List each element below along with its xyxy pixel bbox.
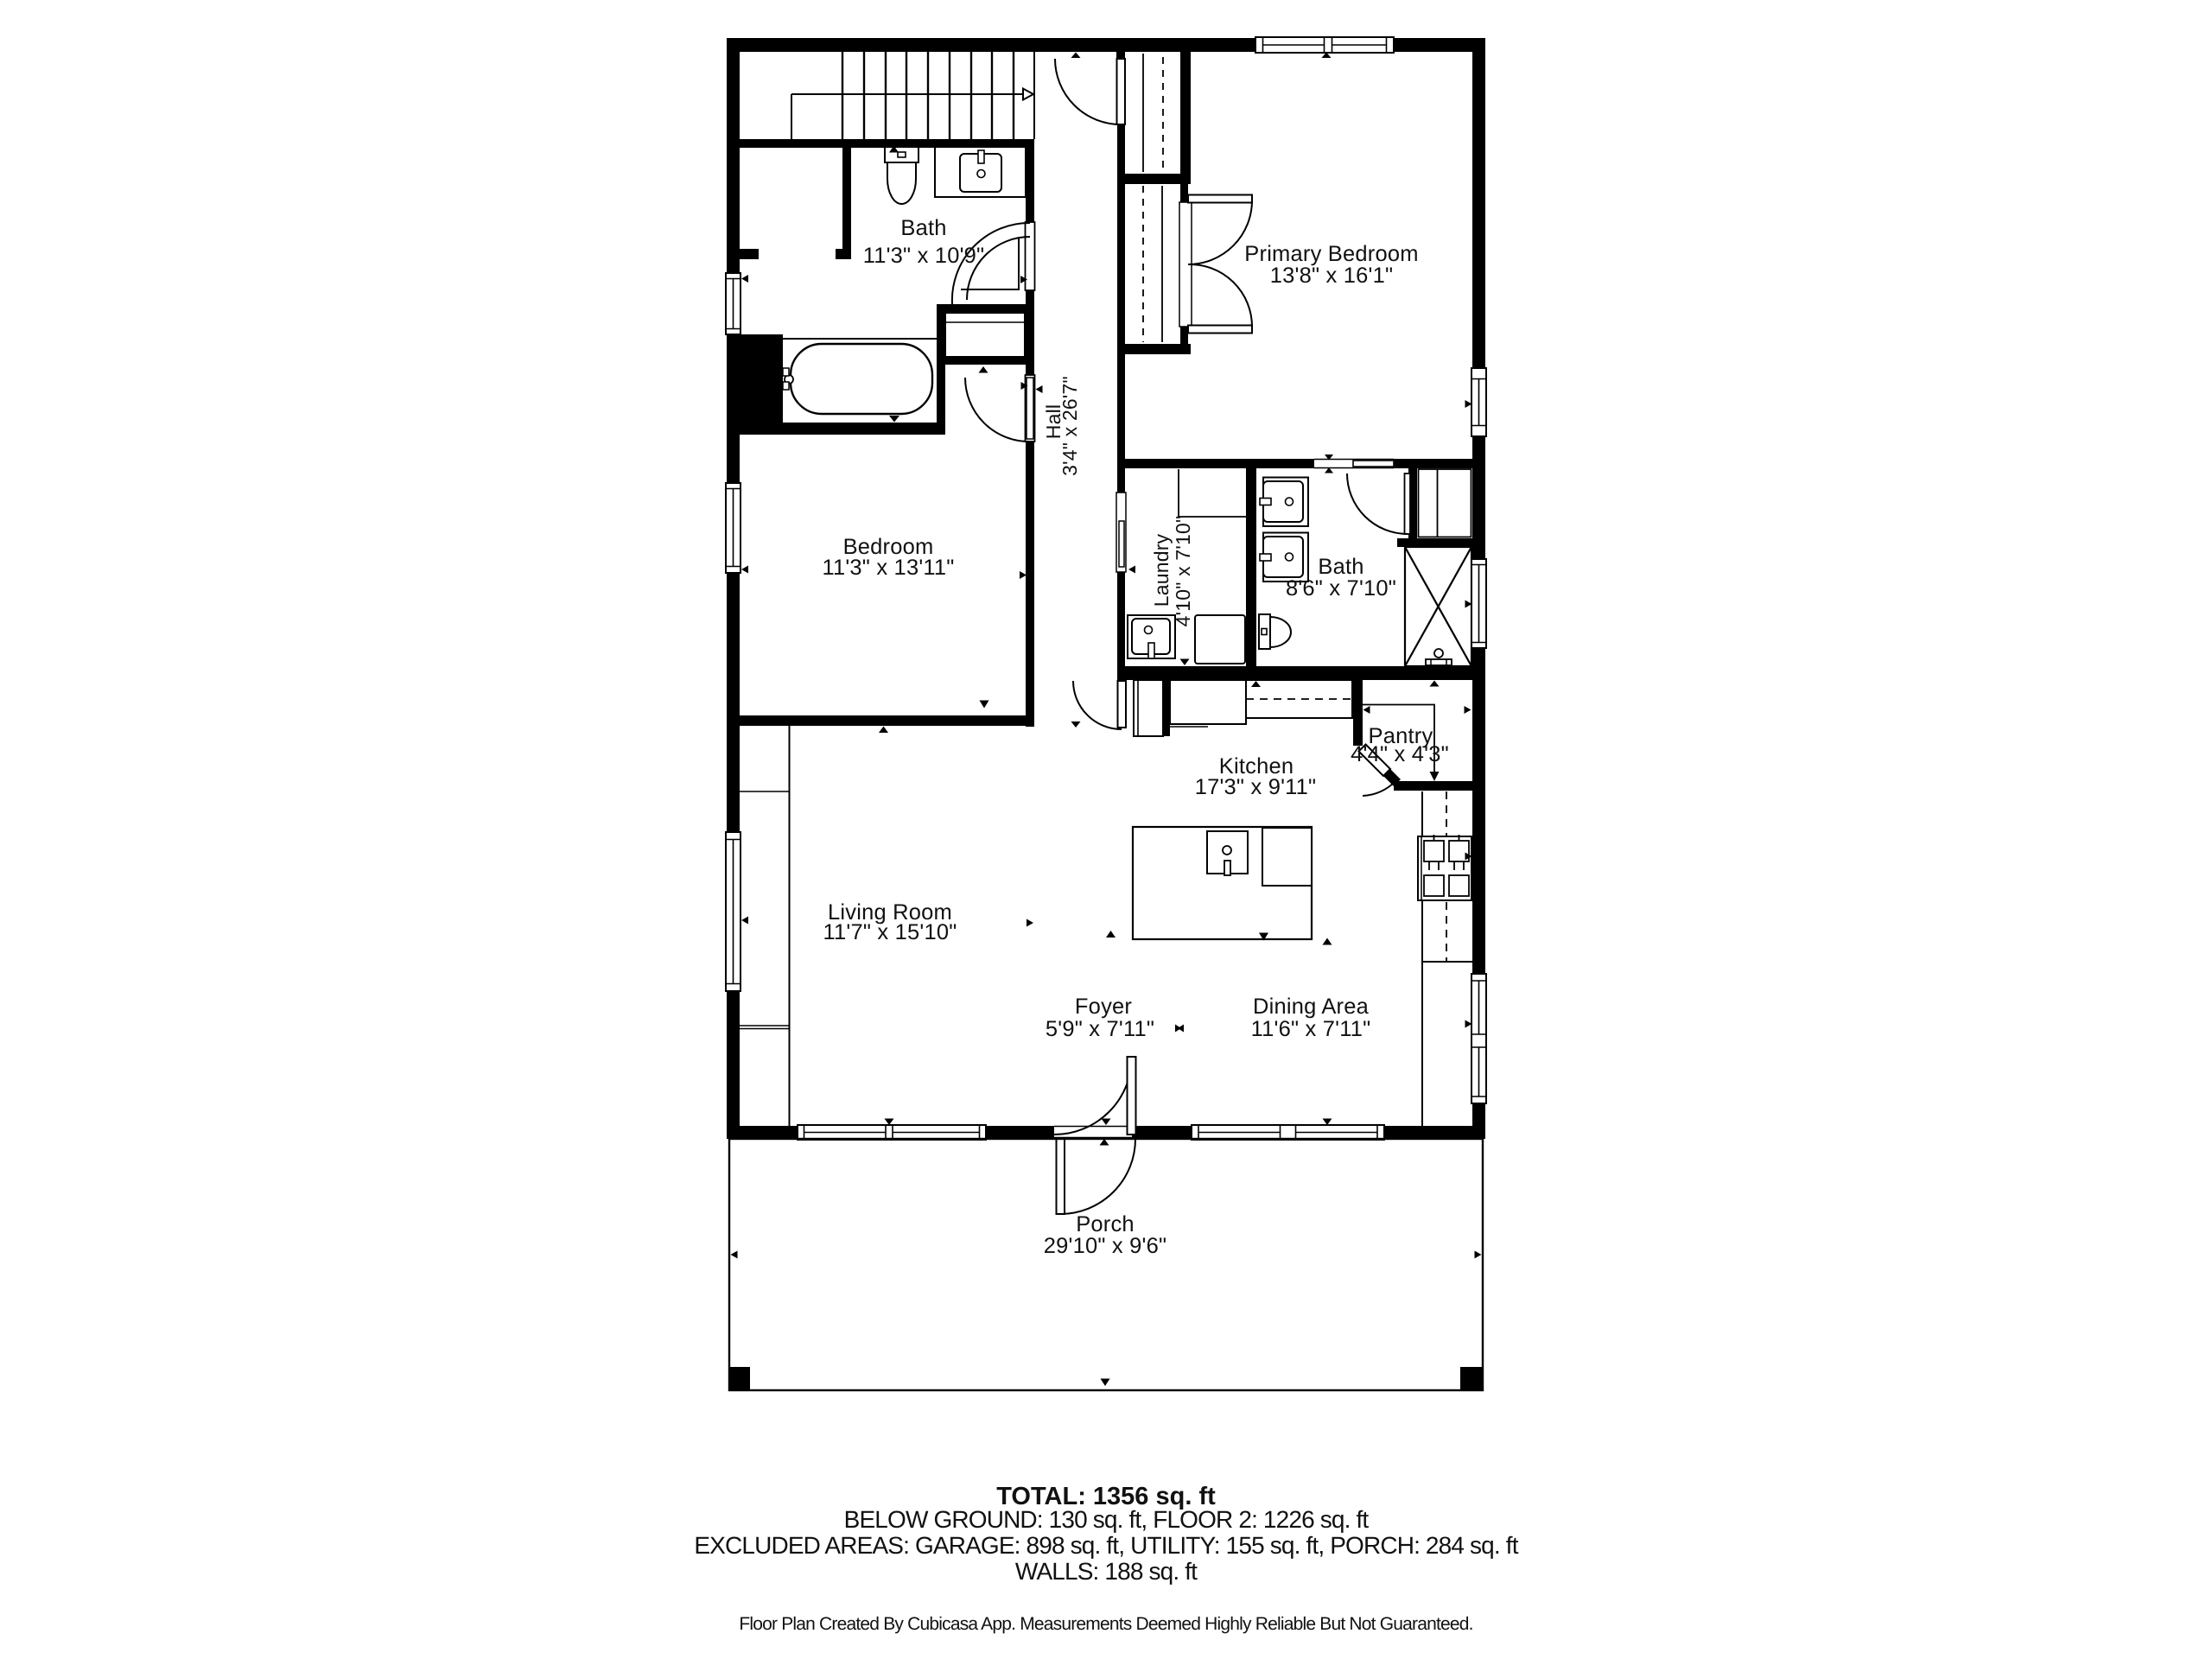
svg-text:EXCLUDED AREAS: GARAGE: 898 sq: EXCLUDED AREAS: GARAGE: 898 sq. ft, UTIL… [694,1532,1518,1559]
svg-text:Floor Plan Created By Cubicasa: Floor Plan Created By Cubicasa App. Meas… [739,1614,1472,1634]
svg-text:Dining Area: Dining Area [1253,995,1370,1019]
svg-text:5'9" x 7'11": 5'9" x 7'11" [1046,1017,1154,1041]
svg-text:4'10" x 7'10": 4'10" x 7'10" [1172,516,1194,627]
svg-text:Bath: Bath [900,216,946,240]
svg-text:11'3" x 10'9": 11'3" x 10'9" [863,244,985,268]
svg-text:29'10" x 9'6": 29'10" x 9'6" [1044,1234,1166,1258]
svg-text:Primary Bedroom: Primary Bedroom [1244,242,1418,266]
svg-text:17'3" x 9'11": 17'3" x 9'11" [1195,775,1317,799]
svg-text:Bath: Bath [1318,555,1363,579]
svg-text:4'4" x 4'3": 4'4" x 4'3" [1351,742,1449,766]
svg-text:13'8" x 16'1": 13'8" x 16'1" [1270,264,1393,288]
svg-text:Laundry: Laundry [1150,533,1173,607]
svg-text:Foyer: Foyer [1075,995,1132,1019]
svg-text:11'3" x 13'11": 11'3" x 13'11" [822,556,954,580]
svg-text:11'7" x 15'10": 11'7" x 15'10" [823,920,957,944]
svg-text:WALLS: 188 sq. ft: WALLS: 188 sq. ft [1015,1558,1198,1585]
svg-text:11'6" x 7'11": 11'6" x 7'11" [1251,1017,1371,1041]
svg-text:Porch: Porch [1076,1212,1135,1236]
svg-text:8'6" x 7'10": 8'6" x 7'10" [1286,576,1396,601]
svg-text:3'4" x 26'7": 3'4" x 26'7" [1058,376,1081,476]
svg-text:BELOW GROUND: 130 sq. ft, FLOO: BELOW GROUND: 130 sq. ft, FLOOR 2: 1226 … [844,1506,1370,1533]
